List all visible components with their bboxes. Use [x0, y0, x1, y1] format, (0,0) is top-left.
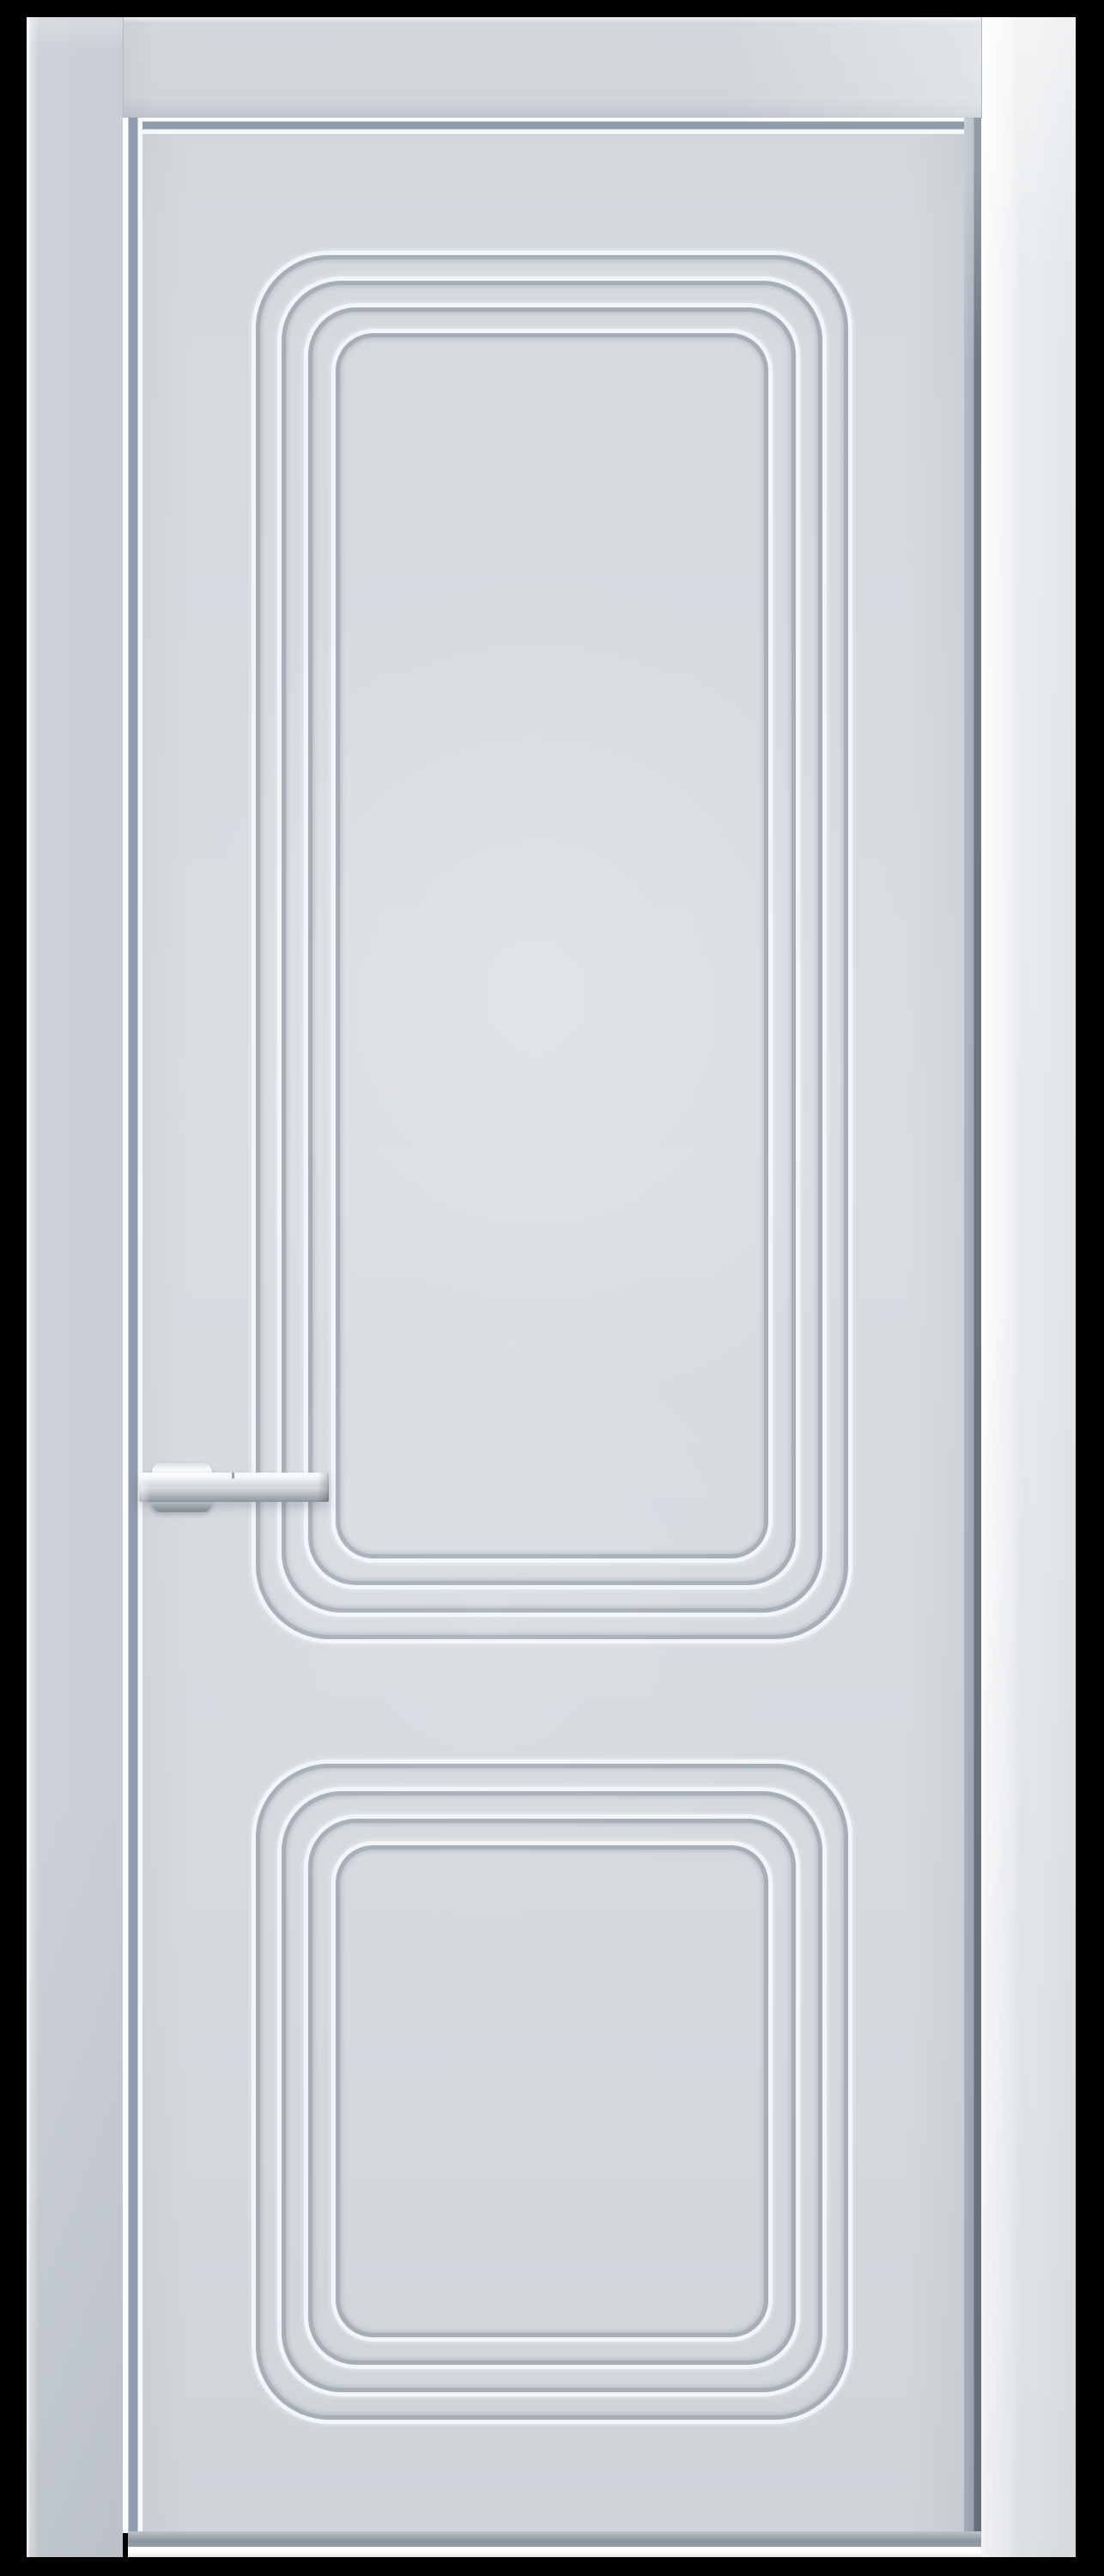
door-product-photo	[0, 0, 1104, 2576]
head-casing	[123, 17, 981, 118]
door-handle	[139, 1463, 329, 1512]
right-casing	[981, 17, 1076, 2557]
left-casing	[27, 17, 123, 2557]
frame-gap-right	[964, 118, 981, 2533]
floor-highlight	[128, 2547, 981, 2557]
casing-seam-right	[981, 17, 982, 118]
handle-lever-seam	[232, 1473, 234, 1479]
frame-gap-top	[123, 118, 981, 134]
door-bottom-shadow	[128, 2531, 981, 2549]
door-leaf	[140, 129, 964, 2533]
casing-seam-left	[123, 17, 124, 118]
frame-gap-left	[123, 118, 143, 2533]
